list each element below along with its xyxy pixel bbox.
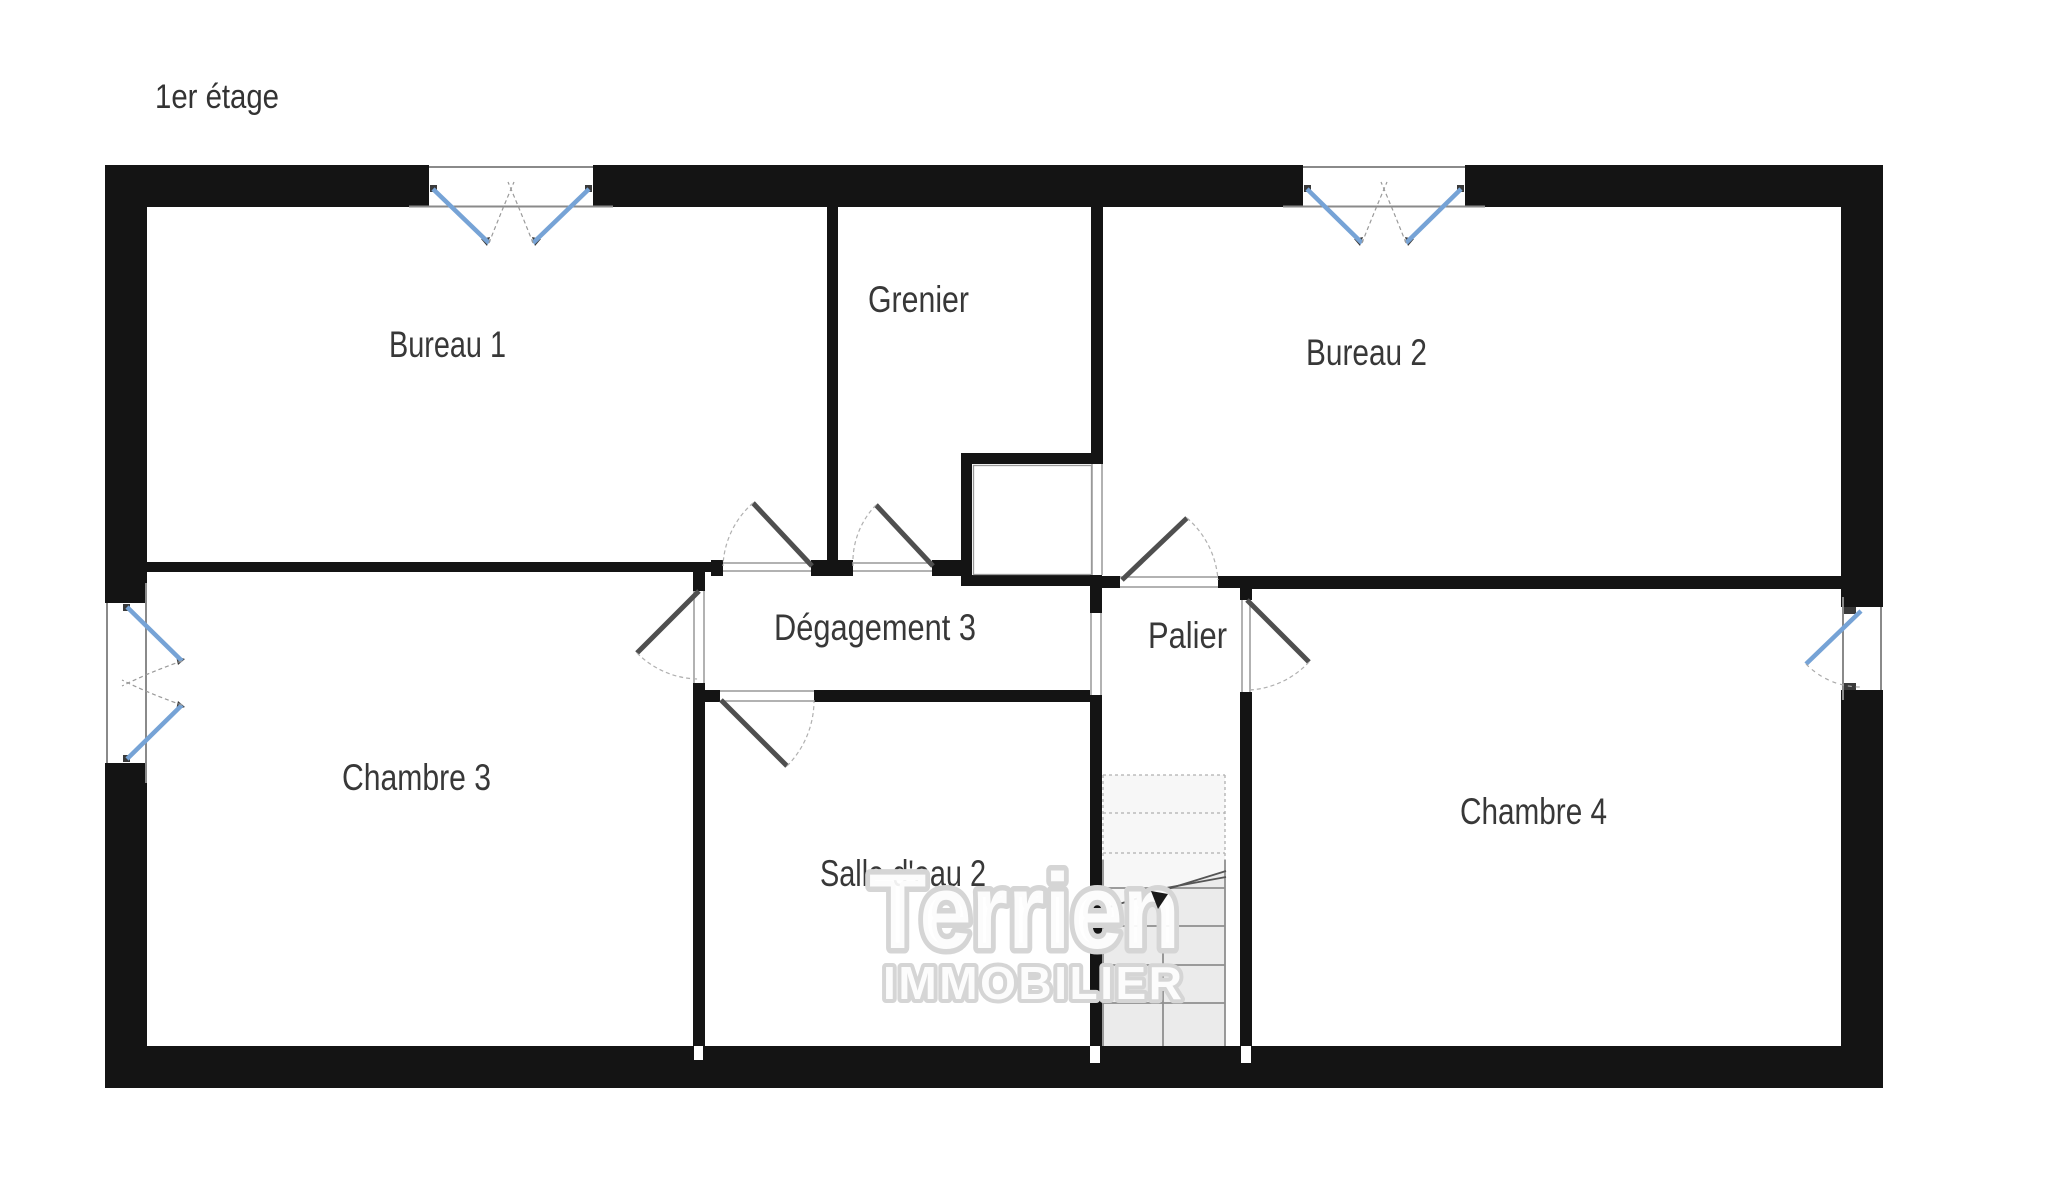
svg-text:Chambre 3: Chambre 3 [342, 757, 491, 798]
svg-text:Terrien: Terrien [869, 851, 1180, 971]
svg-text:Bureau 2: Bureau 2 [1306, 332, 1427, 373]
svg-text:Palier: Palier [1148, 615, 1227, 656]
svg-text:1er étage: 1er étage [155, 78, 279, 116]
svg-text:Chambre 4: Chambre 4 [1460, 791, 1607, 832]
svg-text:Grenier: Grenier [868, 279, 969, 320]
svg-text:Dégagement 3: Dégagement 3 [774, 607, 976, 648]
svg-text:IMMOBILIER: IMMOBILIER [883, 957, 1182, 1009]
svg-text:Bureau 1: Bureau 1 [389, 324, 506, 365]
